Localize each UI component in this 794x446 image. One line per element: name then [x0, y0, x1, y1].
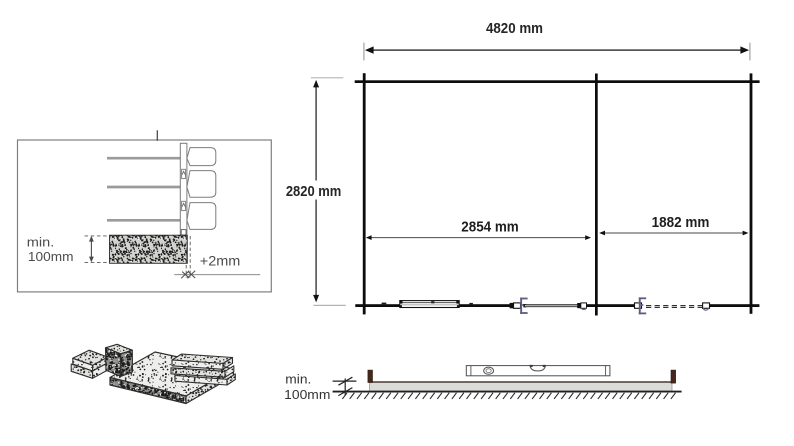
svg-text:+2mm: +2mm [200, 253, 241, 269]
svg-text:min.: min. [285, 372, 311, 387]
svg-text:1882 mm: 1882 mm [652, 214, 710, 231]
svg-text:100mm: 100mm [284, 387, 330, 402]
svg-text:2854 mm: 2854 mm [461, 219, 519, 236]
svg-text:4820 mm: 4820 mm [486, 20, 543, 37]
svg-text:2820 mm: 2820 mm [286, 183, 342, 200]
svg-text:100mm: 100mm [28, 249, 74, 264]
svg-text:min.: min. [27, 235, 55, 250]
